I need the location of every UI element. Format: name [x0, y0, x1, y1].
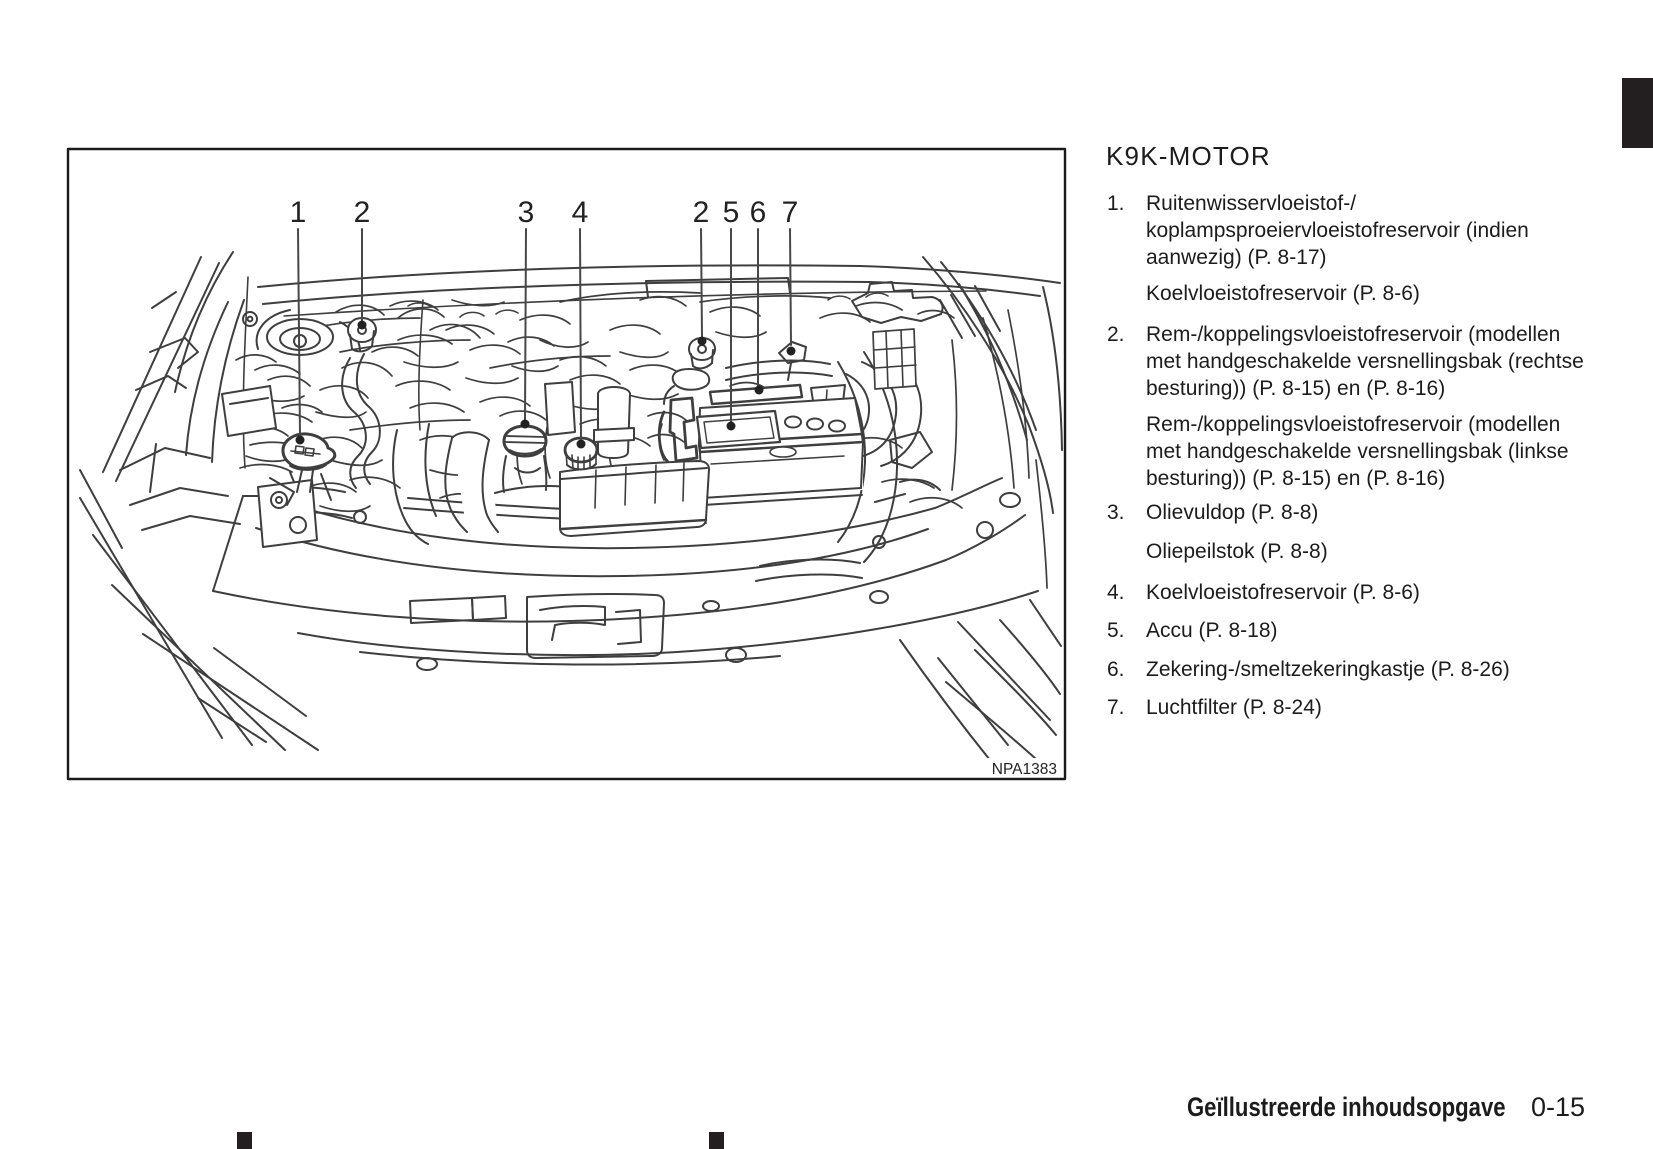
svg-text:4: 4 — [572, 196, 589, 229]
svg-text:1: 1 — [290, 196, 307, 229]
svg-text:NPA1383: NPA1383 — [992, 761, 1057, 778]
svg-text:6: 6 — [750, 196, 767, 229]
svg-text:2: 2 — [354, 196, 371, 229]
svg-text:7: 7 — [782, 196, 799, 229]
svg-text:2: 2 — [693, 196, 710, 229]
svg-text:5: 5 — [723, 196, 740, 229]
svg-text:3: 3 — [518, 196, 535, 229]
